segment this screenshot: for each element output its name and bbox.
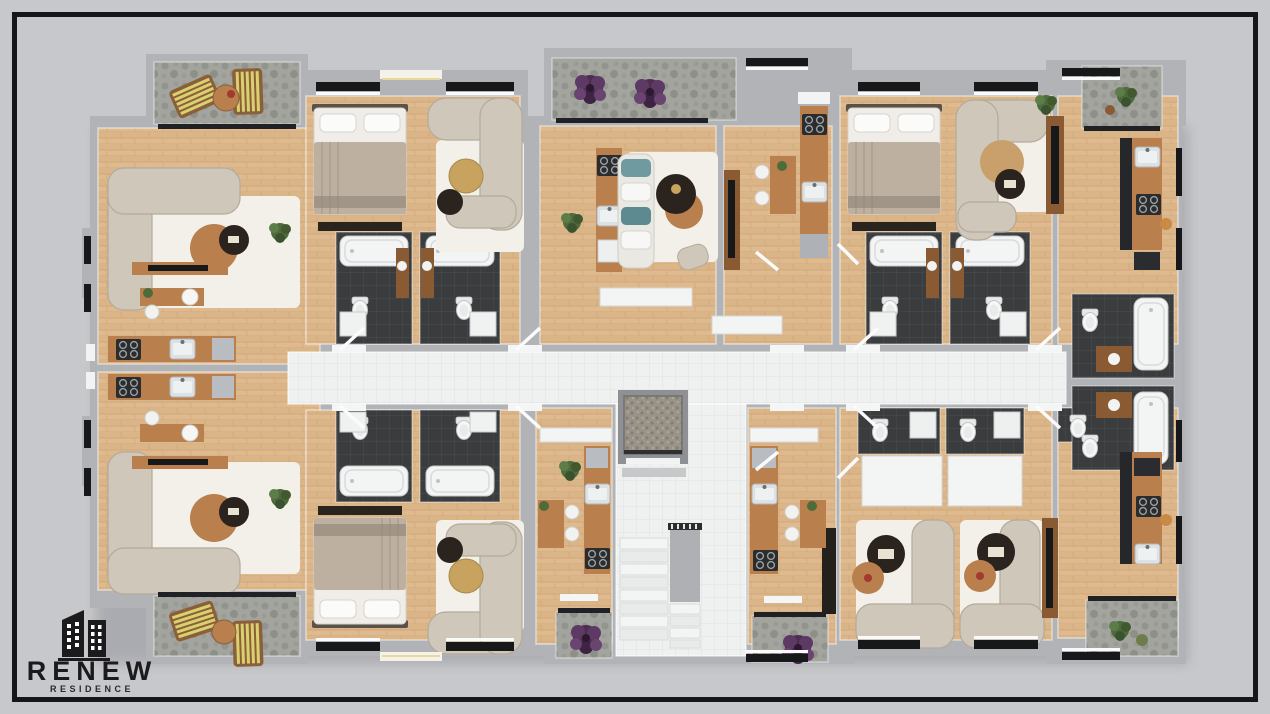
- warm-light: [382, 655, 440, 657]
- table-plant: [539, 501, 549, 511]
- washing-machine: [340, 412, 366, 432]
- table-tray: [1004, 180, 1016, 188]
- elevator-doors: [624, 450, 682, 454]
- elevator-landing: [622, 468, 686, 477]
- stool: [1160, 218, 1172, 230]
- bed-bench: [318, 506, 402, 515]
- vanity: [396, 248, 409, 298]
- washing-machine: [800, 234, 828, 258]
- staircase: [620, 523, 702, 648]
- desk-plant: [143, 288, 153, 298]
- vanity: [926, 248, 939, 298]
- fridge: [1134, 252, 1160, 270]
- washing-machine: [470, 412, 496, 432]
- sofa-cushion: [621, 183, 651, 201]
- washing-machine: [470, 312, 496, 336]
- kitchen-appliance: [212, 376, 234, 398]
- plant-pot: [1105, 105, 1115, 115]
- sofa-cushion-teal: [621, 207, 651, 225]
- coffee-table-dark: [437, 537, 463, 563]
- kitchen-tall-cabinets: [1120, 138, 1132, 250]
- floor-plan-render: RENEW RESIDENCE: [0, 0, 1270, 714]
- stair-flight-right: [670, 604, 700, 648]
- elevator-cab-floor: [624, 396, 682, 454]
- sofa-cushion-teal: [621, 159, 651, 177]
- wardrobe: [862, 456, 942, 506]
- shower-tray: [994, 412, 1020, 438]
- bed-top-2: [312, 104, 408, 214]
- table-tray: [228, 508, 239, 515]
- table-tray: [878, 549, 894, 559]
- sofa-l: [108, 168, 240, 214]
- light-ledge: [380, 70, 442, 79]
- vanity: [951, 248, 964, 298]
- balcony-table: [213, 85, 239, 111]
- washing-machine: [1000, 312, 1026, 336]
- table-plant: [777, 161, 787, 171]
- wardrobe: [540, 428, 612, 442]
- bed-top-right: [846, 104, 942, 214]
- side-table: [182, 289, 198, 305]
- sofa-l: [108, 548, 240, 594]
- console-table: [600, 288, 692, 306]
- kitchen-appliance: [212, 338, 234, 360]
- tv: [148, 265, 208, 271]
- tv: [1046, 528, 1053, 608]
- balcony-bottom-right: [1086, 600, 1178, 656]
- console-table: [712, 316, 782, 334]
- flowers: [227, 90, 235, 98]
- coffee-table-gold: [449, 159, 483, 193]
- stair-mid-wall: [670, 528, 700, 602]
- bed-bench: [852, 222, 936, 231]
- logo-title: RENEW: [27, 656, 158, 686]
- table-decor: [671, 184, 681, 194]
- tv: [148, 459, 208, 465]
- kitchen-cabinet: [798, 92, 830, 104]
- logo-subtitle: RESIDENCE: [50, 684, 134, 694]
- wardrobe: [948, 456, 1022, 506]
- coffee-table-gold: [449, 559, 483, 593]
- coffee-table-dark: [437, 189, 463, 215]
- table-tray: [228, 236, 239, 243]
- elevator: [618, 390, 688, 477]
- fridge: [1134, 458, 1160, 476]
- shower-tray: [910, 412, 936, 438]
- kitchen-tall-cabinets: [1120, 452, 1132, 564]
- wardrobe: [750, 428, 818, 442]
- kitchen-appliance: [598, 240, 620, 262]
- sofa-cushion: [621, 231, 651, 249]
- kitchen-appliance: [586, 448, 608, 468]
- flowers: [864, 574, 872, 582]
- sofa-curved: [958, 202, 1016, 232]
- table-tray: [988, 547, 1004, 557]
- flowers: [976, 572, 984, 580]
- tv: [1051, 126, 1059, 204]
- floor-plan-poster: RENEW RESIDENCE: [0, 0, 1270, 714]
- side-table: [182, 425, 198, 441]
- bed-bench: [318, 222, 402, 231]
- elevator-threshold: [626, 458, 680, 464]
- balcony-table: [212, 620, 236, 644]
- vanity: [421, 248, 434, 298]
- moss: [1136, 634, 1148, 646]
- washing-machine: [340, 312, 366, 336]
- stool: [1160, 514, 1172, 526]
- tv: [728, 180, 735, 258]
- table-plant: [807, 501, 817, 511]
- warm-light: [382, 78, 440, 80]
- bed-bottom-2: [312, 518, 408, 628]
